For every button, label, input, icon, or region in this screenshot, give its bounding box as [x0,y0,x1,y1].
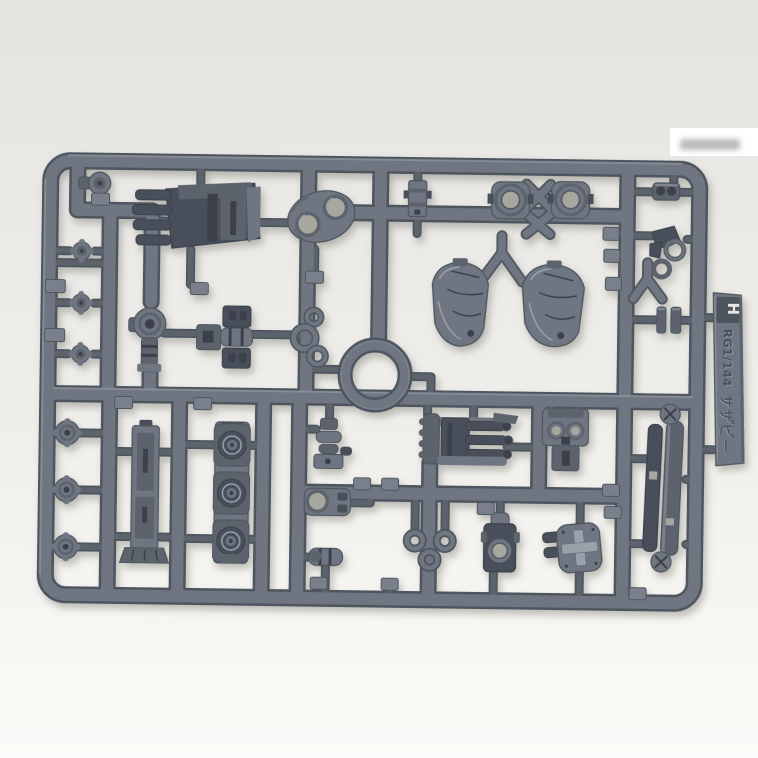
shoulder-armor-left-part [432,258,489,347]
backpack-thruster-part [132,181,261,250]
runner-id-tab: H RG1/144 RG1/144 [711,293,746,466]
watermark-blur-bar [680,139,740,150]
runner-letter: H [724,302,742,315]
photo-scene: H RG1/144 RG1/144 [0,0,758,758]
triple-thruster-stack-part [212,422,250,563]
sprue-photo: H RG1/144 RG1/144 [0,0,758,758]
twin-tube-block-part [653,183,680,200]
grenade-rack-part [418,412,518,466]
tab-scale-emboss: RG1/144 [720,329,735,387]
blurred-watermark-patch [670,128,758,156]
joint-lens-right-part [547,181,594,219]
shoulder-armor-right-part [522,260,585,347]
eyelet-plate-part [304,488,350,516]
small-cylinder-part [308,548,342,565]
joint-lens-left-part [487,182,534,220]
